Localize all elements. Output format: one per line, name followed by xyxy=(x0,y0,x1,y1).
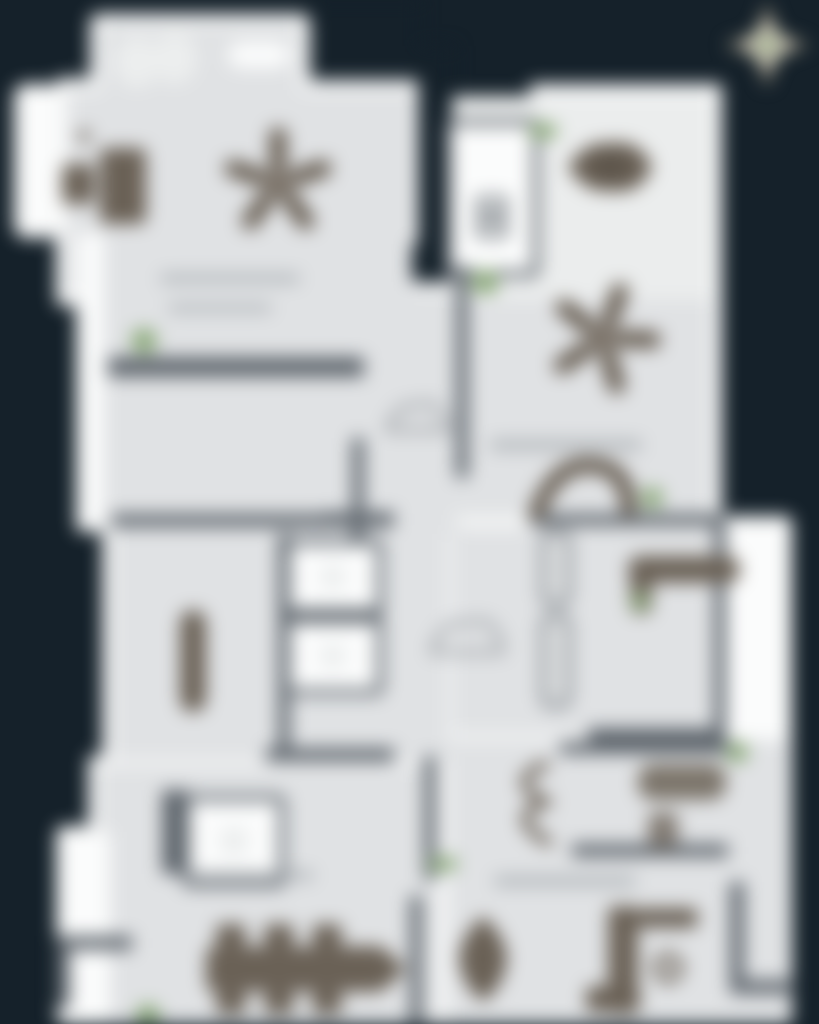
floor-plan-screenshot xyxy=(0,0,819,1024)
sliding-door-panel-2 xyxy=(543,616,569,706)
window-top xyxy=(228,42,290,68)
compass-icon xyxy=(724,2,810,88)
washbasin-1 xyxy=(115,36,159,88)
green-marker xyxy=(131,328,157,354)
green-marker xyxy=(472,270,498,294)
green-marker xyxy=(641,487,663,509)
green-marker xyxy=(529,124,557,139)
plant-core xyxy=(590,154,630,180)
wardrobe-wall xyxy=(108,357,364,377)
shelf-1 xyxy=(478,198,506,214)
green-marker xyxy=(631,592,649,610)
wardrobe xyxy=(180,610,206,712)
shelf-2 xyxy=(478,220,506,236)
sink-counter xyxy=(638,764,726,800)
green-marker xyxy=(726,741,748,763)
blurred-plan-layer xyxy=(0,0,819,1024)
sliding-door-panel-1 xyxy=(543,532,569,604)
floor-plan-svg xyxy=(0,0,819,1024)
washbasin-2 xyxy=(153,32,197,84)
green-marker xyxy=(429,857,457,871)
toilet-icon xyxy=(648,812,678,848)
